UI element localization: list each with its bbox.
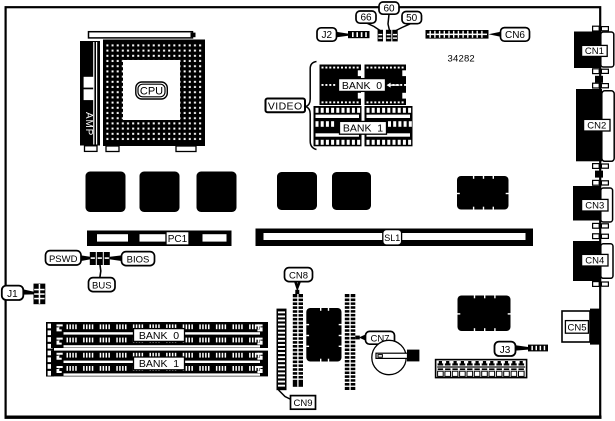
svg-text:CN8: CN8 (289, 271, 308, 282)
svg-text:CN5: CN5 (567, 322, 586, 333)
svg-text:CN1: CN1 (585, 46, 604, 57)
svg-text:CN6: CN6 (505, 30, 525, 41)
svg-text:SL1: SL1 (384, 233, 400, 243)
svg-text:CPU: CPU (140, 86, 163, 98)
svg-text:VIDEO: VIDEO (268, 100, 303, 112)
svg-text:CN2: CN2 (587, 121, 606, 132)
svg-text:CN3: CN3 (585, 201, 604, 212)
svg-text:BANK 0: BANK 0 (139, 330, 179, 342)
svg-text:BANK 0: BANK 0 (342, 80, 382, 92)
svg-text:CN9: CN9 (293, 398, 312, 409)
svg-text:J3: J3 (500, 345, 511, 356)
svg-text:50: 50 (406, 13, 418, 24)
svg-text:AMP: AMP (83, 112, 94, 136)
svg-text:BANK 1: BANK 1 (343, 123, 383, 135)
svg-text:34282: 34282 (448, 54, 475, 65)
svg-text:PC1: PC1 (168, 234, 188, 245)
svg-text:J2: J2 (322, 30, 333, 41)
svg-text:J1: J1 (7, 289, 18, 300)
svg-text:CN4: CN4 (585, 256, 604, 267)
svg-text:66: 66 (360, 13, 372, 24)
svg-text:60: 60 (383, 4, 395, 15)
svg-text:PSWD: PSWD (49, 254, 78, 265)
svg-text:BUS: BUS (92, 281, 112, 292)
svg-text:BIOS: BIOS (127, 255, 150, 266)
svg-text:BANK 1: BANK 1 (139, 358, 179, 370)
